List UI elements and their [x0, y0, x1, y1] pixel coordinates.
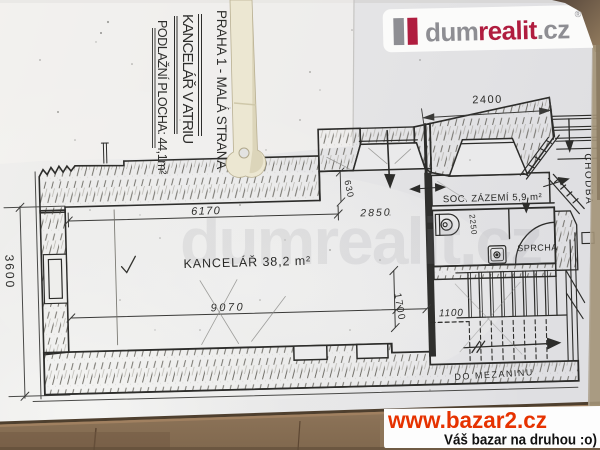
svg-text:www.bazar2.cz: www.bazar2.cz: [387, 407, 547, 433]
svg-text:PODLAŽNÍ PLOCHA: 44,1m²: PODLAŽNÍ PLOCHA: 44,1m²: [155, 20, 170, 174]
svg-text:1100: 1100: [439, 308, 464, 320]
svg-text:9070: 9070: [211, 301, 246, 314]
svg-text:dumrealit.cz: dumrealit.cz: [425, 14, 571, 47]
svg-text:3600: 3600: [2, 254, 17, 289]
svg-text:KANCELÁŘ V ATRIU: KANCELÁŘ V ATRIU: [179, 14, 196, 143]
svg-text:2400: 2400: [472, 94, 503, 107]
svg-text:dumrealit.cz: dumrealit.cz: [180, 204, 541, 278]
svg-text:PRAHA 1 - MALÁ STRANA: PRAHA 1 - MALÁ STRANA: [214, 10, 229, 169]
svg-text:Váš bazar na druhou :o): Váš bazar na druhou :o): [444, 433, 597, 449]
